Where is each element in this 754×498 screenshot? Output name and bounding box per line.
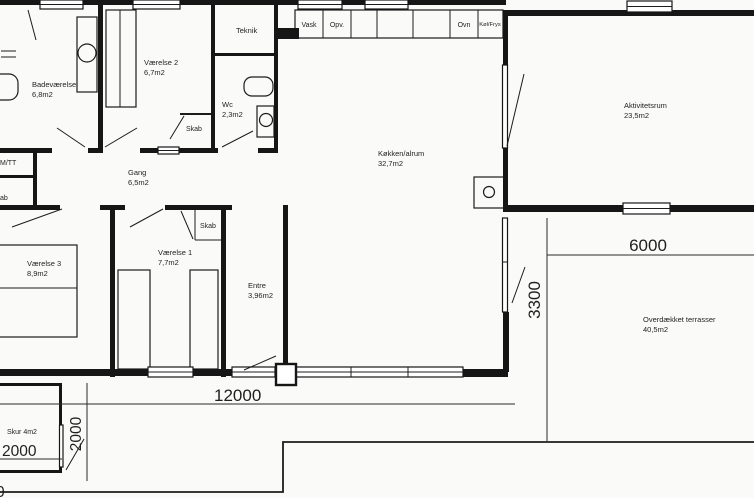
dimension-12000: 12000 [214,386,261,405]
svg-text:Gang: Gang [128,168,146,177]
door-swing [181,211,193,239]
room-label-vaerelse2: Værelse 2 6,7m2 [144,58,178,77]
svg-text:7,7m2: 7,7m2 [158,258,179,267]
dimension-cut-digit: 0 [0,484,5,498]
door-swing-wc [222,131,253,147]
svg-text:Værelse 2: Værelse 2 [144,58,178,67]
appliance-label-ovn: Ovn [458,22,471,29]
counter-outline [295,10,503,38]
appliance-label-koelfrys: Køl/Frys [479,22,501,28]
svg-text:8,9m2: 8,9m2 [27,269,48,278]
door-swing-badevaerelse [57,128,85,147]
door-swing-vaerelse2 [105,128,137,147]
svg-text:Overdækket terrasser: Overdækket terrasser [643,315,716,324]
appliance-label-opv: Opv. [330,22,344,29]
wc-fixtures [244,77,274,137]
room-label-teknik: Teknik [236,26,258,35]
window-symbol [296,367,463,377]
door-swing [512,267,525,303]
svg-text:6,7m2: 6,7m2 [144,68,165,77]
svg-text:Entre: Entre [248,281,266,290]
room-label-vaerelse1: Værelse 1 7,7m2 [158,248,192,267]
kitchen-counter: Vask Opv. Ovn Køl/Frys [295,10,503,38]
window-symbol [40,0,83,9]
svg-text:Værelse 1: Værelse 1 [158,248,192,257]
fireplace-symbol [474,177,505,208]
vanity-sink-symbol [78,44,96,62]
room-label-aktivitetsrum: Aktivitetsrum 23,5m2 [624,101,667,120]
svg-text:6,5m2: 6,5m2 [128,178,149,187]
toilet-bowl-symbol [260,114,273,127]
room-label-vaerelse3: Værelse 3 8,9m2 [27,259,61,278]
svg-text:3,96m2: 3,96m2 [248,291,273,300]
svg-text:40,5m2: 40,5m2 [643,325,668,334]
window-symbol [623,203,670,214]
terrace-outline [0,442,754,492]
svg-text:Wc: Wc [222,100,233,109]
window-symbol [232,367,275,377]
room-label-gang: Gang 6,5m2 [128,168,149,187]
room-label-badevaerelse: Badeværelse 6,8m2 [32,80,76,99]
closet-label-vaerelse2: Skab [186,126,202,133]
utility-label-closet: ab [0,195,8,202]
svg-text:32,7m2: 32,7m2 [378,159,403,168]
window-symbol [133,0,180,9]
utility-label-laundry: M/TT [0,160,17,167]
door-swing [507,74,524,146]
door-symbol-terrace [503,218,526,312]
svg-text:Badeværelse: Badeværelse [32,80,76,89]
wardrobe-symbol [118,270,150,369]
appliance-label-vask: Vask [301,22,317,29]
dimension-6000: 6000 [629,236,667,255]
sink-symbol [244,77,273,96]
dimension-3300: 3300 [525,281,544,319]
room-label-terrasse: Overdækket terrasser 40,5m2 [643,315,716,334]
window-symbol [627,1,672,12]
door-swing-vaerelse1 [130,209,163,227]
svg-text:6,8m2: 6,8m2 [32,90,53,99]
floor-plan: Vask Opv. Ovn Køl/Frys [0,0,754,498]
bed-symbol [106,10,136,107]
dimension-2000-v: 2000 [68,416,85,451]
window-symbol [298,0,342,9]
dimension-2000-h: 2000 [2,443,37,460]
svg-text:Værelse 3: Værelse 3 [27,259,61,268]
windows [40,0,672,377]
window-symbol [365,0,408,9]
svg-text:23,5m2: 23,5m2 [624,111,649,120]
shower-screen-symbol [28,10,36,40]
svg-text:Aktivitetsrum: Aktivitetsrum [624,101,667,110]
floor-plan-page: Vask Opv. Ovn Køl/Frys [0,0,754,498]
door-symbol-kitchen-aktivitetsrum [503,65,525,148]
wardrobe-symbol [190,270,218,369]
room-label-koekken: Køkken/alrum 32,7m2 [378,149,424,168]
door-swing-vaerelse3 [12,209,62,227]
room-label-skur: Skur 4m2 [7,429,37,436]
room-label-wc: Wc 2,3m2 [222,100,243,119]
svg-text:2,3m2: 2,3m2 [222,110,243,119]
closet-label-vaerelse1: Skab [200,223,216,230]
svg-text:Køkken/alrum: Køkken/alrum [378,149,424,158]
room-label-entre: Entre 3,96m2 [248,281,273,300]
vanity-symbol [77,17,97,92]
window-symbol [148,367,193,377]
window-symbol [158,147,179,154]
bedroom-furniture [0,10,218,369]
door-swing [170,116,184,139]
bathtub-symbol [0,74,18,100]
